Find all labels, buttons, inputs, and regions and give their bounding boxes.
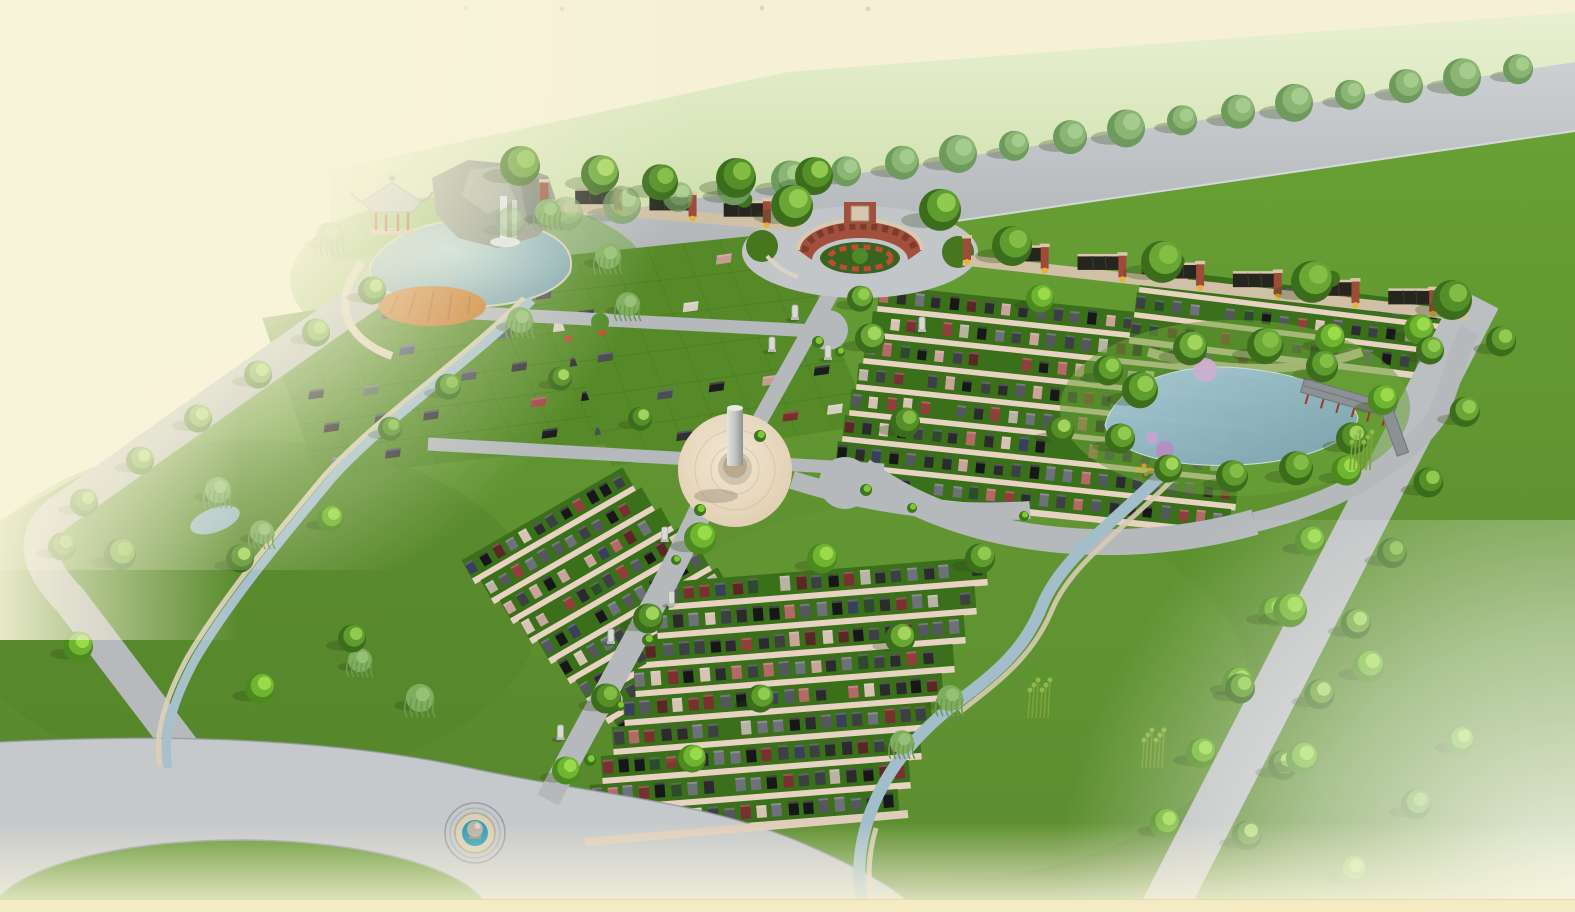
fade-bottom	[0, 822, 1575, 912]
flower-bed-yellow	[1042, 268, 1048, 274]
flower-bed-yellow	[1119, 276, 1125, 282]
fade-left-edge	[0, 0, 240, 640]
flower-bed-yellow	[964, 259, 970, 265]
flower-bed-yellow	[1352, 302, 1358, 308]
shrub	[642, 634, 654, 646]
shrub	[584, 754, 596, 766]
site-plan-rendering	[0, 0, 1575, 912]
shrub	[1019, 511, 1029, 521]
shrub	[615, 701, 625, 711]
bottom-band	[0, 900, 1575, 912]
flowering-shrub-purple-2	[1146, 432, 1158, 444]
scene-canvas	[0, 0, 1575, 912]
flower-bed-yellow	[1197, 285, 1203, 291]
shrub	[907, 503, 917, 513]
